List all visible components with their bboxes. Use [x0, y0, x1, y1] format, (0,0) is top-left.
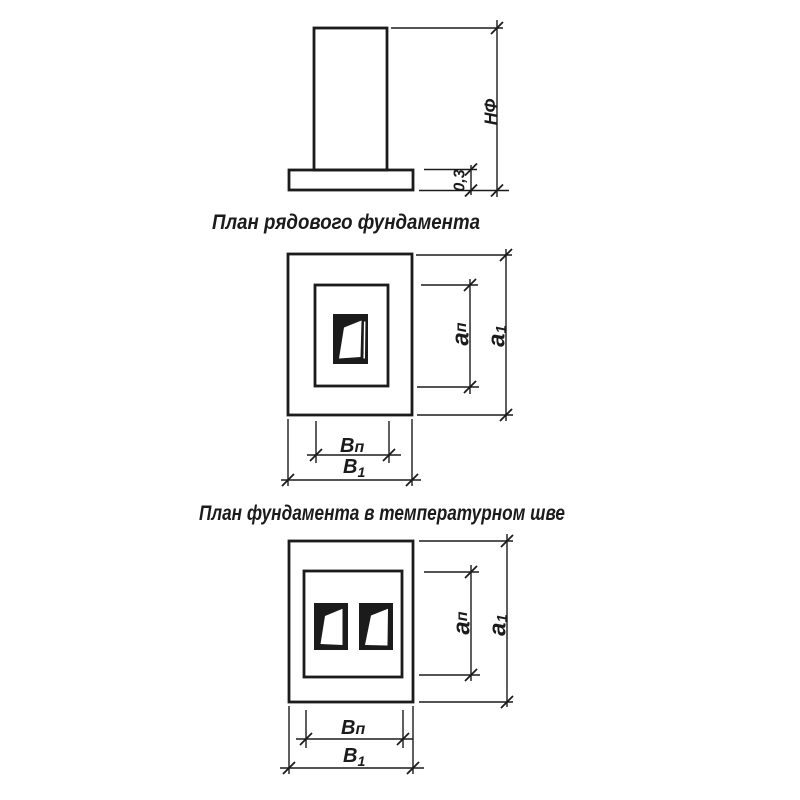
svg-text:НФ: НФ — [481, 99, 501, 126]
svg-text:Вп: Вп — [340, 435, 364, 457]
svg-text:0,3: 0,3 — [452, 169, 469, 191]
svg-text:План фундамента в температурно: План фундамента в температурном шве — [199, 502, 565, 525]
svg-text:Вп: Вп — [341, 717, 365, 739]
svg-text:План рядового фундамента: План рядового фундамента — [212, 211, 480, 234]
